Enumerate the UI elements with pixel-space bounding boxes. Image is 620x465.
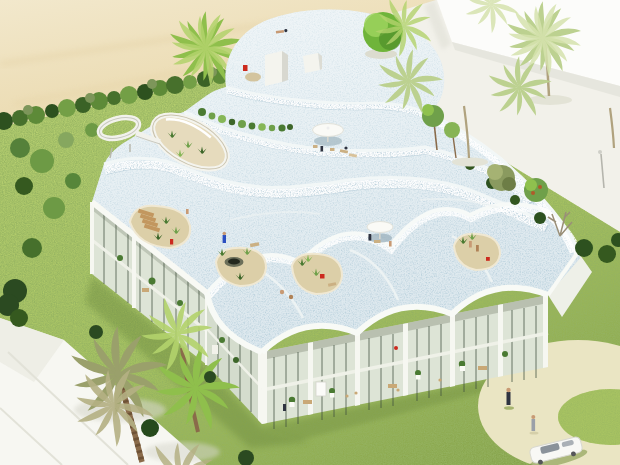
- palm-shadow: [144, 442, 220, 462]
- hedge-blob: [575, 239, 593, 257]
- kitchen-unit: [316, 382, 326, 396]
- swimmer: [289, 295, 293, 299]
- red-chair: [486, 257, 490, 261]
- red-slide-piece: [243, 65, 248, 71]
- architectural-render: [0, 0, 620, 465]
- person-red: [170, 239, 173, 245]
- person: [186, 209, 189, 214]
- person: [369, 234, 372, 241]
- swimmer: [280, 290, 284, 294]
- green-red-tree: [524, 178, 548, 202]
- red-chair: [320, 274, 325, 279]
- hedge-blob: [598, 245, 616, 263]
- red-flowers: [394, 346, 398, 350]
- person: [389, 241, 392, 247]
- person-blue: [223, 232, 227, 243]
- person: [321, 146, 324, 152]
- rock-sculpture: [245, 73, 261, 82]
- interior-person: [283, 404, 286, 411]
